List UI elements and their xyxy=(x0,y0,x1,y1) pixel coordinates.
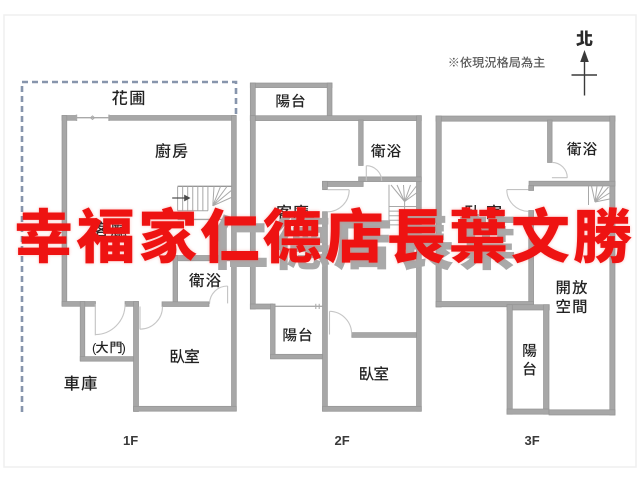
svg-text:): ) xyxy=(122,341,126,356)
svg-text:(: ( xyxy=(92,341,97,356)
svg-text:1F: 1F xyxy=(123,433,138,448)
svg-text:3F: 3F xyxy=(525,433,540,448)
svg-text:2F: 2F xyxy=(335,433,350,448)
